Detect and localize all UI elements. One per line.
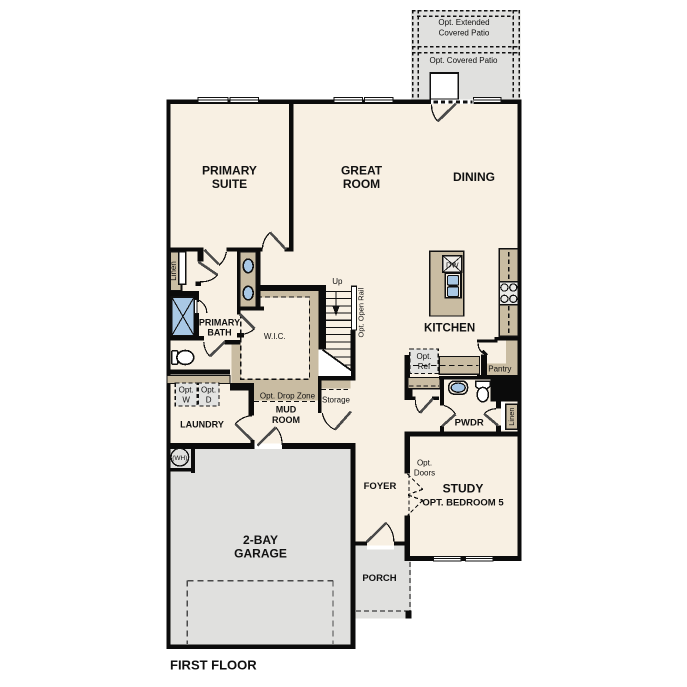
svg-text:Covered Patio: Covered Patio [439,29,490,38]
svg-text:BATH: BATH [207,328,231,338]
svg-text:(WH): (WH) [172,455,187,462]
svg-text:STUDY: STUDY [443,482,484,496]
svg-text:2-BAY: 2-BAY [243,533,278,547]
svg-text:Opt. Extended: Opt. Extended [438,18,489,27]
svg-text:PORCH: PORCH [362,573,396,584]
svg-text:Up: Up [332,277,343,286]
svg-text:W.I.C.: W.I.C. [264,332,286,341]
svg-text:DINING: DINING [453,170,495,184]
svg-text:Doors: Doors [414,469,435,478]
svg-text:PRIMARY: PRIMARY [199,318,240,328]
svg-text:SUITE: SUITE [212,177,247,191]
svg-text:Opt. Covered Patio: Opt. Covered Patio [429,56,498,65]
svg-text:KITCHEN: KITCHEN [424,323,475,335]
svg-text:Opt. Drop Zone: Opt. Drop Zone [260,392,316,401]
svg-text:Storage: Storage [322,395,351,404]
svg-text:Opt. Open Rail: Opt. Open Rail [357,288,366,338]
svg-text:DW: DW [446,260,459,269]
svg-text:PWDR: PWDR [455,417,484,428]
svg-text:FIRST FLOOR: FIRST FLOOR [170,658,257,673]
svg-text:PRIMARY: PRIMARY [202,164,257,178]
svg-text:OPT. BEDROOM 5: OPT. BEDROOM 5 [422,498,504,509]
svg-text:Opt.: Opt. [417,459,432,468]
svg-text:Linen: Linen [169,261,178,281]
svg-text:Opt.: Opt. [179,386,194,395]
svg-text:Pantry: Pantry [488,365,511,374]
svg-text:Linen: Linen [507,407,516,425]
svg-text:Opt.: Opt. [201,386,216,395]
svg-text:GREAT: GREAT [341,164,383,178]
svg-text:ROOM: ROOM [272,415,300,425]
svg-text:FOYER: FOYER [364,481,397,492]
svg-text:W: W [182,396,190,405]
svg-text:Ref: Ref [418,362,431,371]
svg-text:Opt.: Opt. [416,352,431,361]
svg-text:LAUNDRY: LAUNDRY [180,420,224,430]
svg-text:ROOM: ROOM [343,177,380,191]
svg-text:D: D [206,396,212,405]
svg-text:MUD: MUD [276,405,297,415]
svg-text:GARAGE: GARAGE [234,547,287,561]
